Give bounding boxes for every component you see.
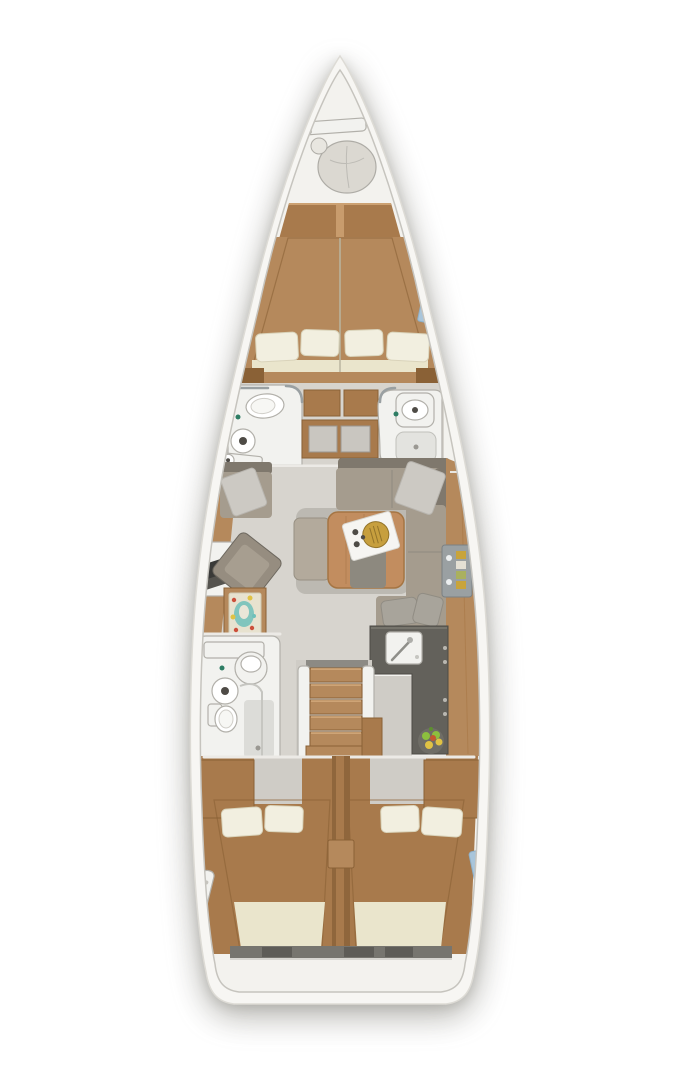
nautical-chart — [229, 593, 261, 637]
stair-tread — [310, 700, 362, 714]
wash-basin — [241, 656, 261, 672]
aft-berth-starboard-foot — [354, 902, 446, 948]
chart-mark — [252, 614, 256, 618]
faucet-port-head — [236, 415, 241, 420]
chart-mark — [250, 626, 254, 630]
bottle — [456, 571, 466, 579]
drawer-handle — [443, 698, 447, 702]
bar-shelf — [442, 545, 472, 597]
sink-drain — [412, 407, 418, 413]
chart-mark — [248, 596, 253, 601]
sink-drain — [221, 687, 229, 695]
locker-panel — [309, 426, 337, 452]
stair-tread — [310, 716, 362, 730]
aft-floor-port — [254, 758, 302, 804]
fruit — [436, 739, 443, 746]
forward-cabin-door — [336, 205, 344, 237]
fruit — [422, 732, 430, 740]
stair-tread — [310, 684, 362, 698]
knob — [446, 579, 452, 585]
faucet-stbd-head — [394, 412, 399, 417]
faucet-base — [407, 637, 413, 643]
locker-panel — [341, 426, 370, 452]
foot-strip-hatch — [262, 947, 292, 957]
anchor-windlass — [311, 138, 327, 154]
chart-island — [239, 605, 249, 619]
yacht-floorplan-stage — [0, 0, 675, 1080]
aft-cabins — [191, 756, 487, 958]
stair-tread — [310, 668, 362, 682]
aft-floor-starboard — [370, 758, 426, 804]
pillow — [345, 329, 384, 356]
pillow — [301, 329, 340, 356]
drawer-handle — [443, 660, 447, 664]
sofa-seat-right — [406, 505, 446, 601]
stairs — [310, 668, 362, 746]
chart-mark — [231, 615, 236, 620]
pillow — [421, 807, 463, 838]
interior — [191, 70, 487, 992]
leaf — [429, 727, 433, 731]
drawer-handle — [443, 712, 447, 716]
chart-mark — [232, 598, 236, 602]
bottle — [456, 561, 466, 569]
pillow — [255, 332, 298, 362]
fruit — [425, 741, 433, 749]
knob — [446, 555, 452, 561]
forward-heads — [228, 383, 446, 467]
shower-drain — [414, 445, 419, 450]
sink-knob — [415, 655, 419, 659]
drawer-handle — [443, 646, 447, 650]
pillow — [386, 332, 429, 362]
sink-drain — [239, 437, 247, 445]
pillow — [381, 805, 420, 832]
pillow — [265, 805, 304, 832]
bulkhead-box — [328, 840, 354, 868]
bottle — [456, 581, 466, 589]
foot-strip-hatch — [344, 947, 374, 957]
shower-drain — [256, 746, 261, 751]
pillow — [221, 807, 263, 838]
corridor-cabinet-left — [304, 390, 340, 416]
stair-tread — [310, 732, 362, 746]
chart-mark — [234, 628, 238, 632]
stool — [294, 518, 330, 580]
bottle — [456, 551, 466, 559]
foot-strip-hatch — [385, 947, 413, 957]
fruit — [430, 735, 436, 741]
corridor-cabinet-right — [344, 390, 378, 416]
toilet-aft-seat — [219, 710, 233, 728]
aft-berth-port-foot — [234, 902, 325, 948]
yacht-floorplan — [0, 0, 675, 1080]
aft-head-port — [198, 634, 308, 770]
faucet-aft-head — [220, 666, 225, 671]
